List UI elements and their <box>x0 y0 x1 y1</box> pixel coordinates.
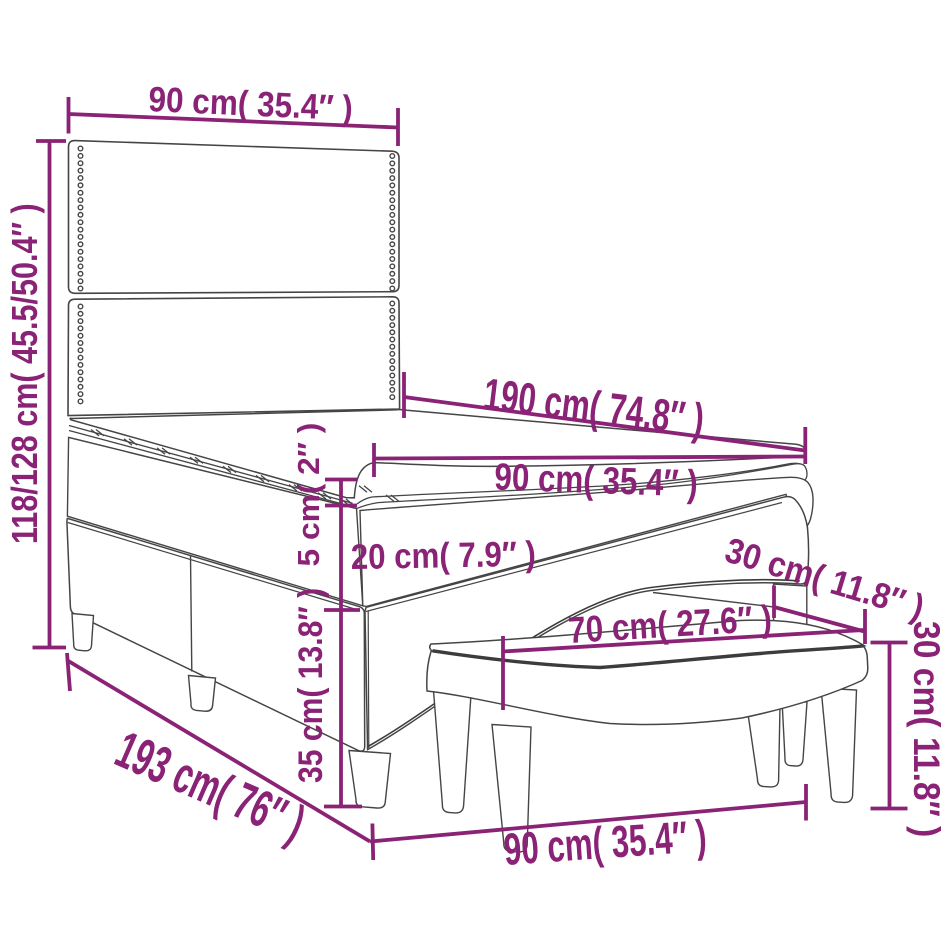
svg-text:90 cm( 35.4″ ): 90 cm( 35.4″ ) <box>494 456 699 506</box>
svg-text:30 cm( 11.8″ ): 30 cm( 11.8″ ) <box>906 621 947 837</box>
svg-text:20 cm( 7.9″ ): 20 cm( 7.9″ ) <box>350 535 536 578</box>
svg-text:35 cm( 13.8″ ): 35 cm( 13.8″ ) <box>291 588 329 783</box>
svg-text:5 cm( 2″ ): 5 cm( 2″ ) <box>292 423 326 567</box>
svg-text:118/128 cm( 45.5/50.4″ ): 118/128 cm( 45.5/50.4″ ) <box>6 203 46 544</box>
